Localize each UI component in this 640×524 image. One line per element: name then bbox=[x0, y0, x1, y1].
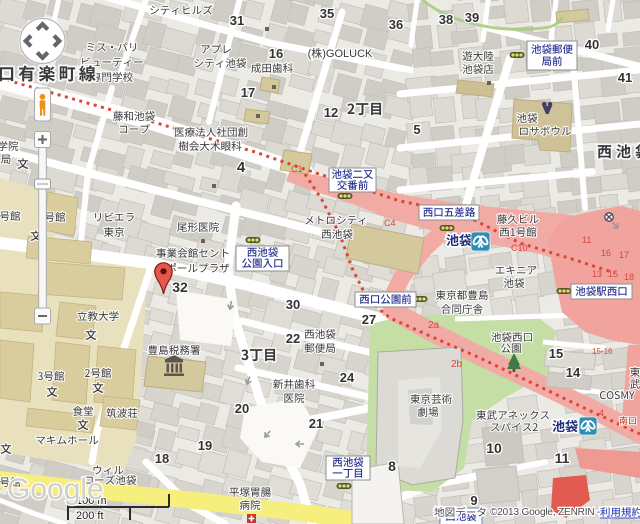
svg-text:30: 30 bbox=[286, 297, 300, 312]
svg-text:14: 14 bbox=[566, 365, 581, 380]
svg-text:4: 4 bbox=[237, 159, 246, 176]
svg-text:35: 35 bbox=[320, 6, 334, 21]
svg-text:41: 41 bbox=[618, 70, 632, 85]
svg-text:15-16: 15-16 bbox=[592, 347, 613, 356]
svg-text:2b: 2b bbox=[451, 359, 463, 370]
svg-text:17: 17 bbox=[619, 250, 629, 260]
svg-text:15: 15 bbox=[608, 269, 618, 279]
svg-text:18: 18 bbox=[155, 451, 169, 466]
svg-text:4: 4 bbox=[599, 408, 604, 418]
svg-text:38: 38 bbox=[439, 12, 453, 27]
svg-text:C10: C10 bbox=[511, 243, 528, 253]
svg-text:16: 16 bbox=[269, 46, 283, 61]
svg-text:5: 5 bbox=[413, 122, 420, 137]
svg-text:21: 21 bbox=[309, 416, 323, 431]
svg-text:C4: C4 bbox=[384, 218, 396, 228]
svg-text:13: 13 bbox=[592, 269, 602, 279]
svg-text:27: 27 bbox=[362, 312, 376, 327]
svg-text:17: 17 bbox=[241, 85, 255, 100]
svg-text:15: 15 bbox=[549, 346, 563, 361]
svg-text:8: 8 bbox=[388, 458, 396, 474]
svg-text:11: 11 bbox=[582, 235, 591, 245]
svg-text:200 ft: 200 ft bbox=[76, 510, 104, 522]
svg-text:22: 22 bbox=[286, 331, 300, 346]
svg-text:C1: C1 bbox=[291, 164, 303, 174]
svg-text:9: 9 bbox=[470, 493, 477, 508]
svg-text:10: 10 bbox=[486, 440, 502, 456]
svg-text:19: 19 bbox=[198, 438, 212, 453]
svg-text:31: 31 bbox=[230, 13, 244, 28]
svg-text:40: 40 bbox=[585, 37, 599, 52]
svg-text:Google: Google bbox=[7, 473, 104, 506]
svg-text:12: 12 bbox=[324, 105, 338, 120]
svg-text:39: 39 bbox=[465, 10, 479, 25]
svg-text:11: 11 bbox=[555, 450, 570, 466]
svg-text:24: 24 bbox=[340, 370, 355, 385]
svg-text:16: 16 bbox=[601, 248, 611, 258]
svg-text:2a: 2a bbox=[428, 320, 440, 331]
svg-text:(株)GOLUCK: (株)GOLUCK bbox=[308, 46, 373, 60]
svg-text:18: 18 bbox=[624, 272, 634, 282]
svg-text:32: 32 bbox=[172, 279, 188, 295]
svg-text:©2013 Google, ZENRIN -: ©2013 Google, ZENRIN - bbox=[490, 507, 600, 518]
svg-text:20: 20 bbox=[235, 401, 249, 416]
svg-text:36: 36 bbox=[389, 17, 403, 32]
